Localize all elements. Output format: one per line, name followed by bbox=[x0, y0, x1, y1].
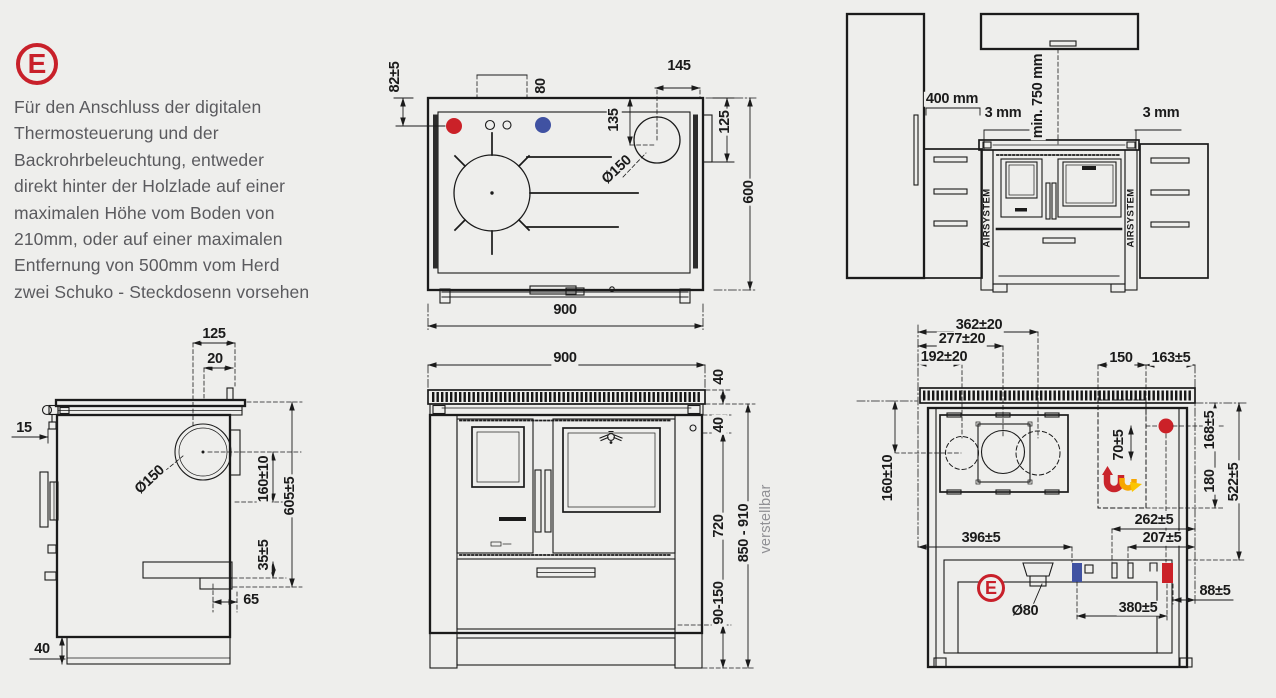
red-connector bbox=[1162, 563, 1173, 583]
red-marker-dot bbox=[446, 118, 462, 134]
e-logo-letter: E bbox=[28, 48, 47, 80]
dim-180: 180 bbox=[1203, 467, 1218, 494]
w-flame-icon bbox=[1102, 466, 1142, 492]
dim-15: 15 bbox=[14, 421, 34, 436]
installation-note-text: Für den Anschluss der digitalen Thermost… bbox=[14, 94, 316, 305]
wood-drawer bbox=[143, 562, 232, 578]
dim-160-10-side: 160±10 bbox=[257, 454, 272, 504]
dim-80: 80 bbox=[534, 76, 549, 96]
right-drawer-cabinet bbox=[1140, 144, 1208, 278]
dim-207-5: 207±5 bbox=[1141, 531, 1184, 546]
kitchen-arrangement-drawing bbox=[843, 8, 1273, 298]
top-view-drawing bbox=[380, 45, 800, 330]
wall-cabinet bbox=[981, 14, 1138, 49]
brand-mark bbox=[491, 542, 511, 546]
firebox-door bbox=[457, 419, 533, 553]
bottom-drawer bbox=[457, 559, 675, 629]
dim-82-5: 82±5 bbox=[388, 60, 403, 95]
tall-cabinet bbox=[847, 14, 924, 278]
dim-40-hood: 40 bbox=[712, 367, 727, 387]
dim-160-10-rear: 160±10 bbox=[881, 453, 896, 503]
dim-min-750mm: min. 750 mm bbox=[1031, 52, 1046, 141]
dim-40-side: 40 bbox=[32, 642, 52, 657]
dim-396-5: 396±5 bbox=[960, 531, 1003, 546]
dim-3mm-right: 3 mm bbox=[1141, 106, 1182, 121]
airsystem-label-left: AIRSYSTEM bbox=[982, 188, 992, 247]
hob-module bbox=[940, 415, 1068, 492]
dim-35-5: 35±5 bbox=[257, 538, 272, 573]
dim-400mm: 400 mm bbox=[924, 92, 980, 107]
dim-163-5: 163±5 bbox=[1150, 351, 1193, 366]
dim-168-5: 168±5 bbox=[1203, 409, 1218, 452]
dim-diam-80: Ø80 bbox=[1010, 604, 1041, 619]
dim-88-5: 88±5 bbox=[1198, 584, 1233, 599]
dim-125-side: 125 bbox=[200, 327, 227, 342]
airsystem-label-right: AIRSYSTEM bbox=[1126, 188, 1136, 247]
knob-circle bbox=[486, 121, 495, 130]
dim-40-rail: 40 bbox=[712, 415, 727, 435]
knob-circle bbox=[503, 121, 511, 129]
dim-65: 65 bbox=[241, 593, 261, 608]
dim-145: 145 bbox=[665, 59, 692, 74]
blue-marker-dot bbox=[535, 117, 551, 133]
red-position-dot bbox=[1159, 419, 1174, 434]
dim-850-910: 850 - 910 bbox=[737, 502, 752, 565]
dim-135: 135 bbox=[607, 106, 622, 133]
dim-262-5: 262±5 bbox=[1133, 513, 1176, 528]
dim-900-top: 900 bbox=[551, 303, 578, 318]
dim-900-front: 900 bbox=[551, 351, 578, 366]
dim-600: 600 bbox=[742, 178, 757, 205]
electric-e-logo: E bbox=[16, 43, 58, 85]
adjustable-label: verstellbar bbox=[759, 482, 774, 555]
dim-380-5: 380±5 bbox=[1117, 601, 1160, 616]
dim-720: 720 bbox=[712, 512, 727, 539]
dim-150-rear: 150 bbox=[1107, 351, 1134, 366]
installation-drawing-page: E Für den Anschluss der digitalen Thermo… bbox=[0, 0, 1276, 698]
side-view-drawing bbox=[5, 322, 325, 694]
e-logo-letter-small: E bbox=[985, 578, 997, 599]
dim-3mm-left: 3 mm bbox=[983, 106, 1024, 121]
rear-view-drawing bbox=[855, 318, 1275, 698]
dim-125-top: 125 bbox=[718, 108, 733, 135]
electric-e-logo-small: E bbox=[977, 574, 1005, 602]
dim-522-5: 522±5 bbox=[1227, 461, 1242, 504]
dim-192-20: 192±20 bbox=[919, 350, 969, 365]
dim-20: 20 bbox=[205, 352, 225, 367]
front-view-drawing bbox=[393, 333, 788, 698]
dim-90-150: 90-150 bbox=[712, 579, 727, 626]
dim-605-5: 605±5 bbox=[283, 475, 298, 518]
dim-70-5: 70±5 bbox=[1112, 428, 1127, 463]
oven-door-ornament bbox=[600, 432, 622, 444]
left-drawer-cabinet bbox=[924, 149, 982, 278]
blue-connector bbox=[1072, 563, 1082, 582]
dim-277-20: 277±20 bbox=[937, 332, 987, 347]
